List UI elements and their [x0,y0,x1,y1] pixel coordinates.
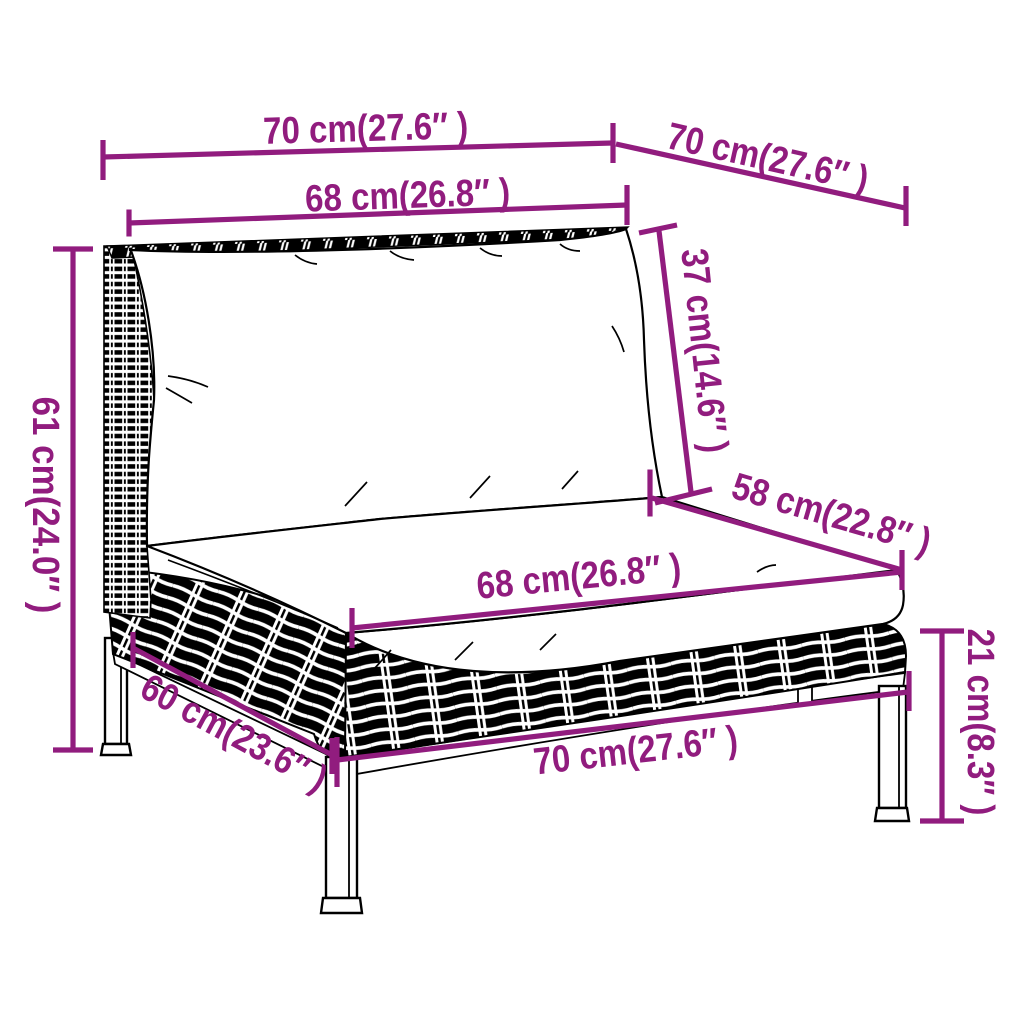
svg-text:61 cm(24.0″ ): 61 cm(24.0″ ) [25,397,68,614]
svg-text:68 cm(26.8″ ): 68 cm(26.8″ ) [304,170,510,220]
svg-text:70 cm(27.6″ ): 70 cm(27.6″ ) [263,104,469,152]
svg-text:21 cm(8.3″ ): 21 cm(8.3″ ) [959,629,1002,816]
